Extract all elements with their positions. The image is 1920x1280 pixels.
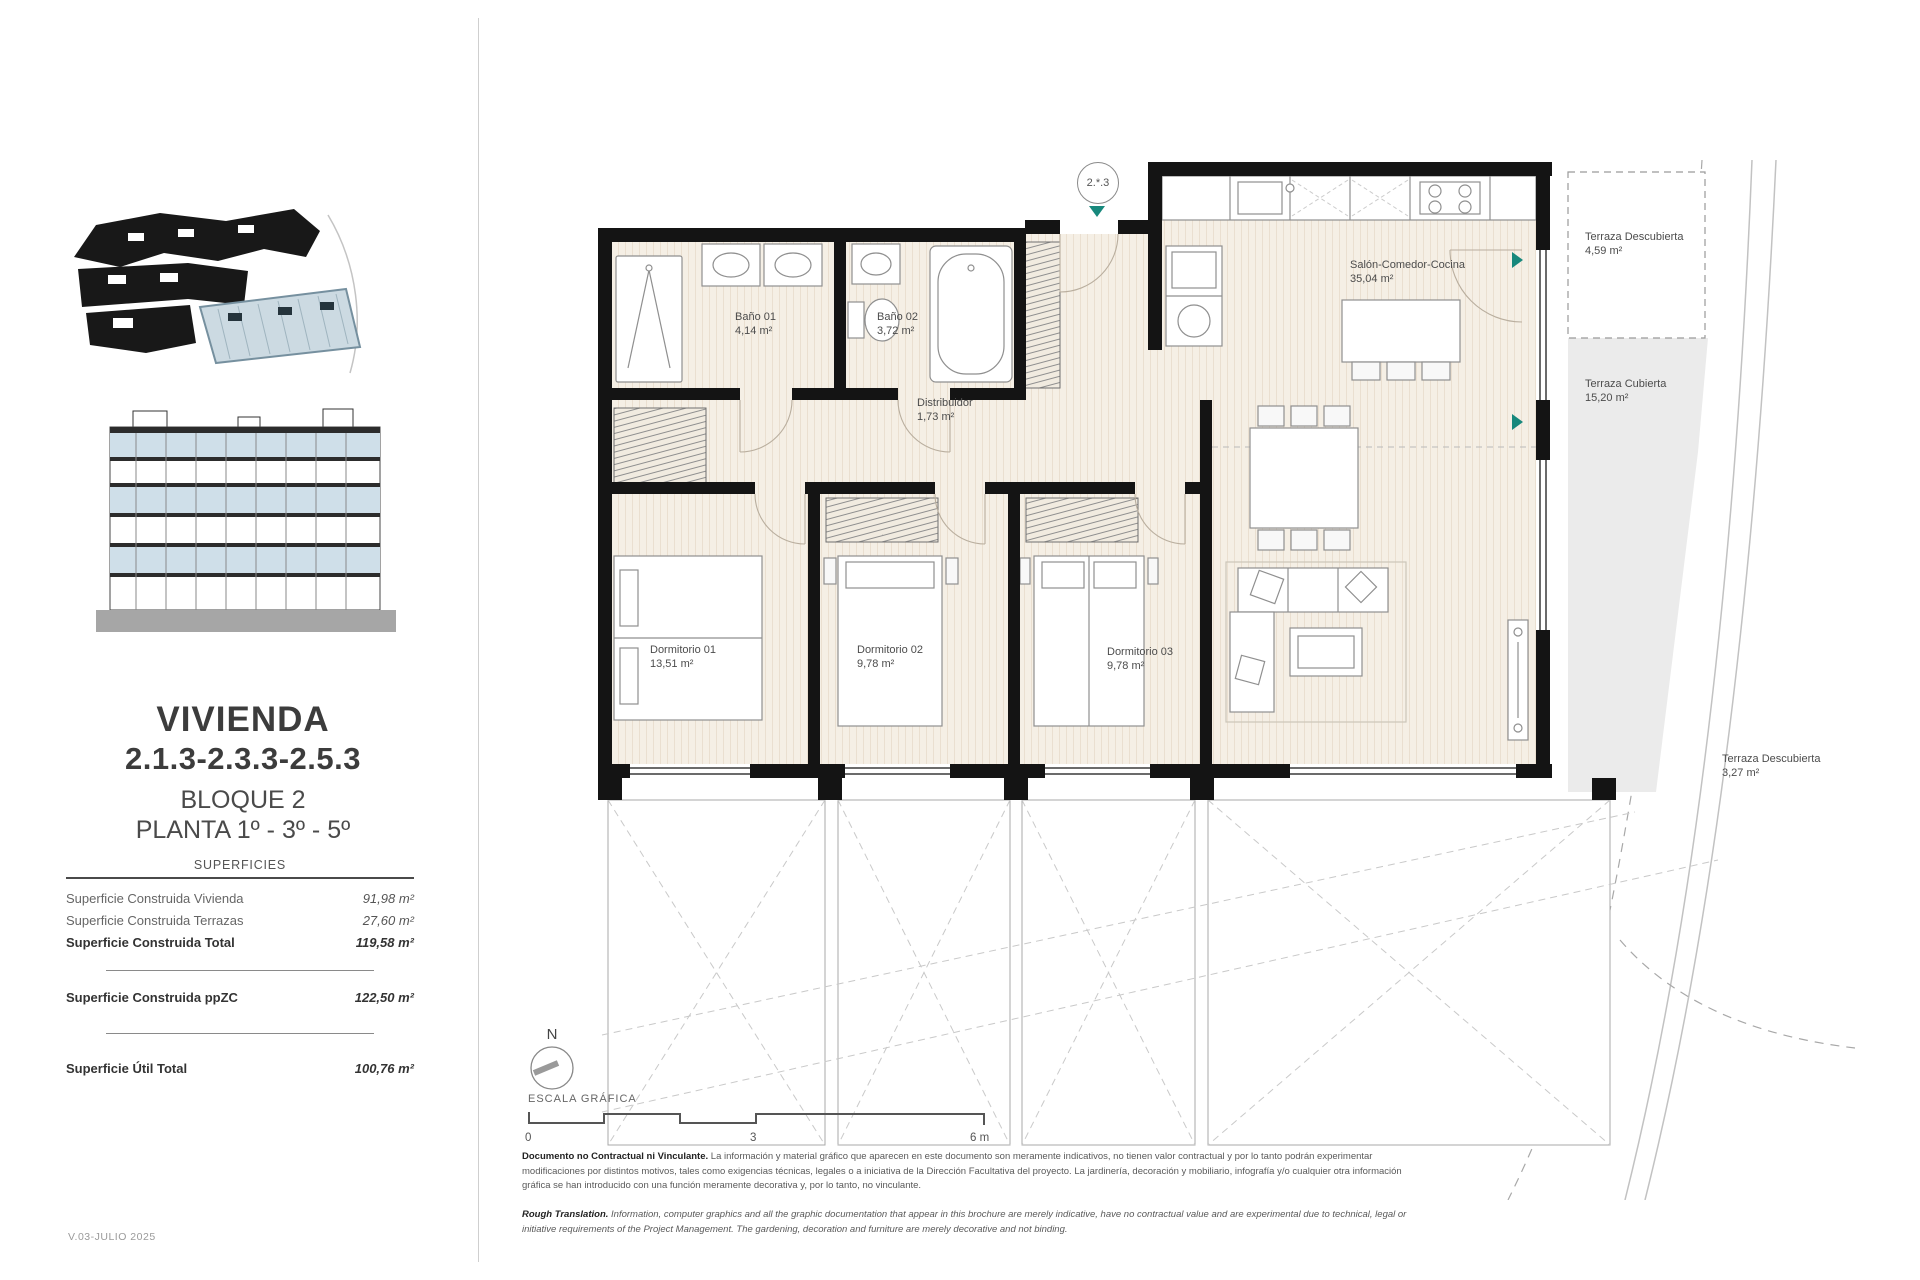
table-row: Superficie Construida Total 119,58 m² xyxy=(66,932,414,954)
unit-title-block: VIVIENDA 2.1.3-2.3.3-2.5.3 BLOQUE 2 PLAN… xyxy=(78,700,408,845)
room-label-dormitorio-01: Dormitorio 01 13,51 m² xyxy=(650,643,716,672)
building-elevation xyxy=(88,395,403,645)
table-divider xyxy=(106,1033,374,1034)
window-marker-icon xyxy=(1512,414,1523,430)
surfaces-rule xyxy=(66,877,414,879)
table-row: Superficie Construida Terrazas 27,60 m² xyxy=(66,910,414,932)
version-stamp: V.03-JULIO 2025 xyxy=(68,1231,156,1243)
surfaces-table: SUPERFICIES Superficie Construida Vivien… xyxy=(66,858,414,1080)
row-value: 91,98 m² xyxy=(363,888,414,910)
block-label: BLOQUE 2 xyxy=(78,785,408,815)
row-value: 100,76 m² xyxy=(355,1058,414,1080)
table-row: Superficie Construida Vivienda 91,98 m² xyxy=(66,888,414,910)
room-label-distribuidor: Distribuidor 1,73 m² xyxy=(917,396,973,425)
scale-bar xyxy=(528,1108,990,1130)
row-label: Superficie Construida ppZC xyxy=(66,987,238,1009)
row-label: Superficie Construida Terrazas xyxy=(66,910,244,932)
window-marker-icon xyxy=(1512,252,1523,268)
unit-numbers: 2.1.3-2.3.3-2.5.3 xyxy=(78,740,408,779)
floor-label: PLANTA 1º - 3º - 5º xyxy=(78,815,408,845)
compass-icon xyxy=(526,1044,586,1094)
brochure-page: { "document": { "version": "V.03-JULIO 2… xyxy=(0,0,1920,1280)
room-label-dormitorio-03: Dormitorio 03 9,78 m² xyxy=(1107,645,1173,674)
room-label-terraza-descubierta-1: Terraza Descubierta 4,59 m² xyxy=(1585,230,1683,259)
row-value: 27,60 m² xyxy=(363,910,414,932)
disclaimer-es: Documento no Contractual ni Vinculante. … xyxy=(522,1150,1427,1194)
table-row: Superficie Construida ppZC 122,50 m² xyxy=(66,987,414,1009)
room-label-dormitorio-02: Dormitorio 02 9,78 m² xyxy=(857,643,923,672)
row-label: Superficie Útil Total xyxy=(66,1058,187,1080)
room-label-salon: Salón-Comedor-Cocina 35,04 m² xyxy=(1350,258,1465,287)
disclaimer-en: Rough Translation. Information, computer… xyxy=(522,1208,1427,1237)
table-divider xyxy=(106,970,374,971)
row-value: 119,58 m² xyxy=(356,932,414,954)
room-label-bano-01: Baño 01 4,14 m² xyxy=(735,310,776,339)
room-label-terraza-descubierta-2: Terraza Descubierta 3,27 m² xyxy=(1722,752,1820,781)
terraces xyxy=(1568,172,1708,792)
site-key-plan xyxy=(68,205,368,380)
entrance-marker-icon xyxy=(1089,206,1105,217)
scale-ticks: 0 3 6 m xyxy=(528,1132,998,1148)
row-label: Superficie Construida Total xyxy=(66,932,235,954)
north-label: N xyxy=(534,1026,570,1043)
page-title: VIVIENDA xyxy=(78,700,408,740)
scale-bar-label: ESCALA GRÁFICA xyxy=(528,1093,637,1105)
surfaces-heading: SUPERFICIES xyxy=(66,858,414,877)
unit-marker: 2.*.3 xyxy=(1077,162,1119,204)
room-label-bano-02: Baño 02 3,72 m² xyxy=(877,310,918,339)
table-row: Superficie Útil Total 100,76 m² xyxy=(66,1058,414,1080)
room-label-terraza-cubierta: Terraza Cubierta 15,20 m² xyxy=(1585,377,1666,406)
floor-plan xyxy=(590,160,1860,1200)
row-label: Superficie Construida Vivienda xyxy=(66,888,244,910)
row-value: 122,50 m² xyxy=(355,987,414,1009)
sidebar-divider xyxy=(478,18,479,1262)
